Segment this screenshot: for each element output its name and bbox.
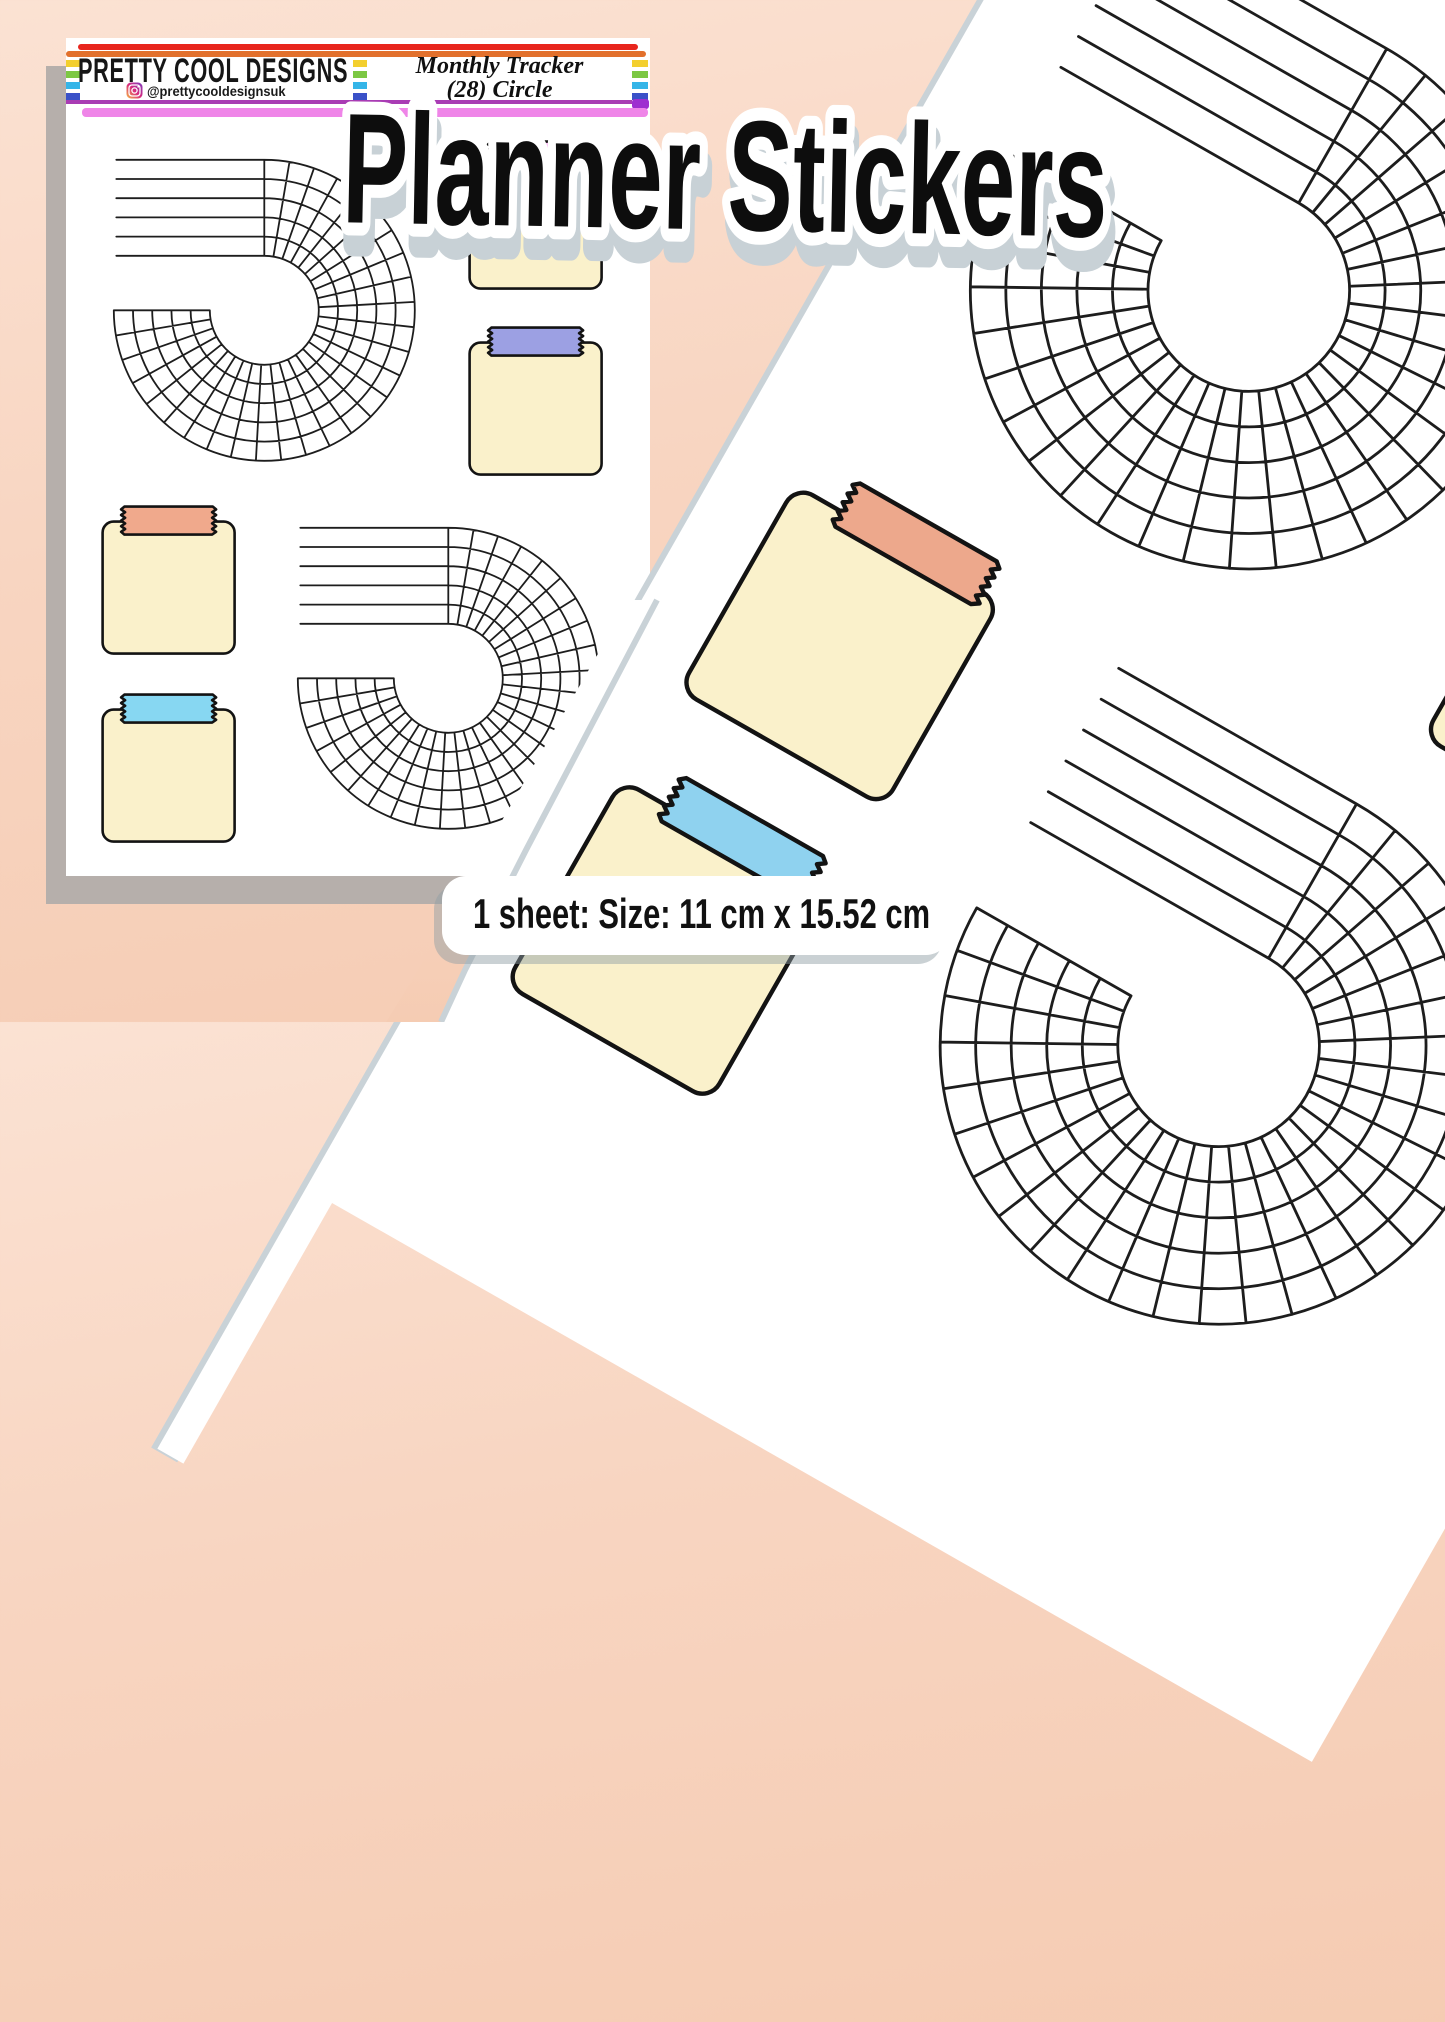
svg-text:Planner Stickers: Planner Stickers: [341, 81, 1109, 271]
